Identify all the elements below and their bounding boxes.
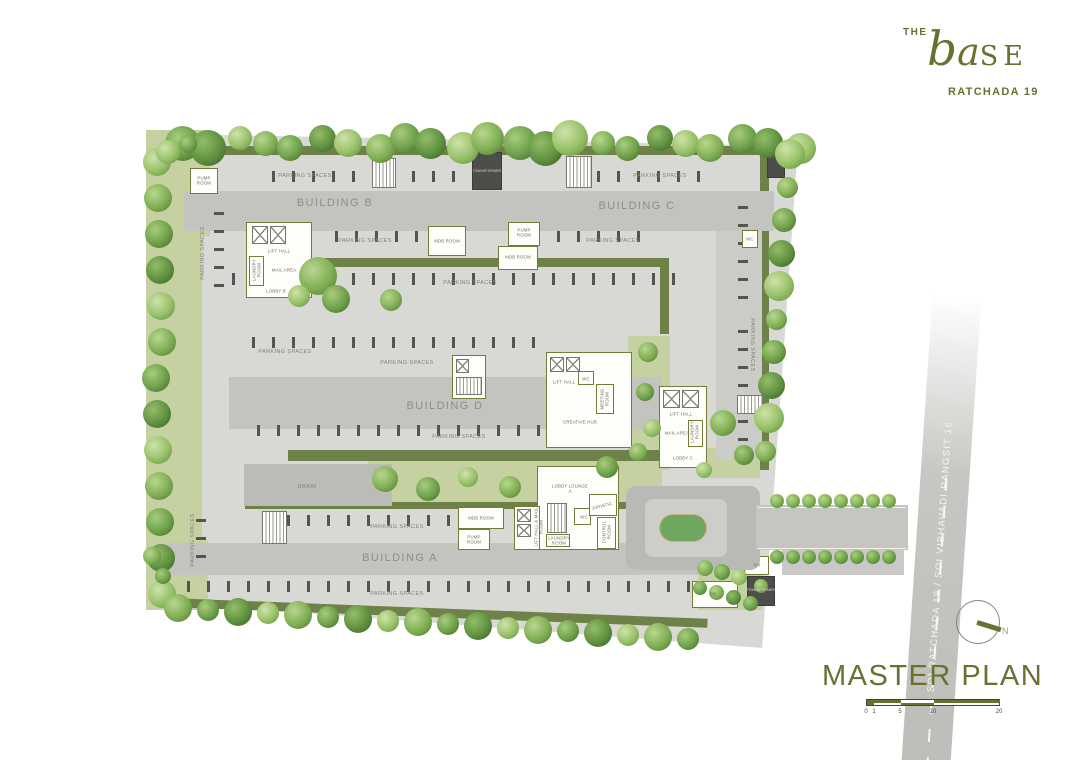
- curb-line: [758, 548, 906, 549]
- scale-tick-0: 0: [864, 709, 867, 715]
- label-parking: PARKING SPACES: [633, 173, 686, 179]
- tree-icon: [818, 550, 832, 564]
- label-control-room: CONTROL ROOM: [602, 519, 613, 545]
- tree-icon: [850, 494, 864, 508]
- label-pump-a: PUMP ROOM: [461, 535, 487, 546]
- label-mail-area-b: MAIL AREA: [271, 267, 297, 272]
- tree-icon: [143, 400, 171, 428]
- tree-icon: [764, 271, 794, 301]
- tree-icon: [834, 494, 848, 508]
- label-laundry-a: LAUNDRY ROOM: [546, 536, 572, 547]
- tree-icon: [416, 477, 440, 501]
- tree-icon: [524, 616, 552, 644]
- tree-icon: [557, 620, 579, 642]
- label-lobby-b: LOBBY B: [263, 288, 289, 293]
- lift-icon: [517, 509, 531, 522]
- scale-tick-1: 1: [872, 709, 875, 715]
- tree-icon: [696, 462, 712, 478]
- scale-tick-5: 5: [898, 709, 901, 715]
- tree-icon: [380, 289, 402, 311]
- tree-icon: [731, 569, 747, 585]
- tree-icon: [288, 285, 310, 307]
- tree-icon: [591, 131, 615, 155]
- tree-icon: [758, 372, 785, 399]
- page-title: MASTER PLAN: [822, 660, 1043, 693]
- tree-icon: [309, 125, 336, 152]
- label-parking: PARKING SPACES: [278, 173, 331, 179]
- lift-icon: [550, 357, 564, 372]
- label-mail-area-c: MAIL AREA: [664, 430, 690, 435]
- brand-subtitle: RATCHADA 19: [948, 86, 1039, 98]
- label-transformer-entry: TRANSFORMER: [747, 588, 775, 592]
- brand-the: THE: [903, 27, 928, 38]
- tree-icon: [770, 550, 784, 564]
- parking-ticks: [240, 425, 540, 436]
- lift-icon: [456, 359, 469, 373]
- tree-icon: [696, 134, 724, 162]
- tree-icon: [471, 122, 504, 155]
- tree-icon: [786, 494, 800, 508]
- label-parking: PARKING SPACES: [370, 524, 423, 530]
- brand-letters-se: SE: [980, 41, 1028, 72]
- tree-icon: [802, 550, 816, 564]
- tree-icon: [334, 129, 362, 157]
- tree-icon: [882, 494, 896, 508]
- tree-icon: [697, 560, 713, 576]
- tree-icon: [777, 177, 798, 198]
- tree-icon: [710, 410, 736, 436]
- tree-icon: [284, 601, 312, 629]
- tree-icon: [144, 436, 172, 464]
- label-drain: DRAIN: [297, 484, 316, 490]
- scale-tick-20: 20: [996, 709, 1003, 715]
- access-road: [756, 505, 908, 550]
- tree-icon: [615, 136, 640, 161]
- tree-icon: [179, 135, 197, 153]
- tree-icon: [672, 130, 699, 157]
- scale-segment: [867, 700, 874, 705]
- parking-ticks: [196, 505, 206, 573]
- label-lobby-lounge-a: LOBBY LOUNGE A: [550, 484, 590, 495]
- tree-icon: [743, 596, 758, 611]
- label-building-d: BUILDING D: [407, 400, 484, 412]
- label-building-b: BUILDING B: [297, 197, 373, 209]
- label-laundry-b: LAUNDRY ROOM: [252, 257, 263, 283]
- lift-icon: [663, 390, 680, 408]
- label-lift-hall-c: LIFT HALL: [668, 411, 694, 416]
- tree-icon: [768, 240, 795, 267]
- tree-icon: [882, 550, 896, 564]
- parking-ticks: [170, 581, 700, 592]
- tree-icon: [144, 184, 172, 212]
- lift-icon: [566, 357, 580, 372]
- tree-icon: [643, 419, 661, 437]
- hedge-inner-top: [312, 258, 668, 267]
- tree-icon: [770, 494, 784, 508]
- tree-icon: [404, 608, 432, 636]
- brand-letter-a: a: [957, 30, 980, 74]
- tree-icon: [818, 494, 832, 508]
- tree-icon: [147, 292, 175, 320]
- label-mdb-room: MDB ROOM: [434, 238, 460, 243]
- label-guard-house: GH: [744, 562, 770, 567]
- north-label: N: [1002, 626, 1009, 636]
- label-creative-hub: CREATIVE HUB: [560, 419, 600, 424]
- label-building-c: BUILDING C: [599, 200, 676, 212]
- tree-icon: [766, 309, 787, 330]
- scale-segment: [901, 703, 934, 706]
- tree-icon: [145, 472, 173, 500]
- label-guard-room: GR: [700, 591, 726, 596]
- label-parking-vertical: PARKING SPACES: [749, 318, 755, 371]
- lift-icon: [682, 390, 699, 408]
- label-lift-hall-mail-room: LIFT HALL & MAIL ROOM: [534, 507, 545, 547]
- label-laundry-c: LAUNDRY ROOM: [690, 419, 701, 445]
- label-transformer-top: TRANSFORMER: [473, 169, 501, 173]
- lift-icon: [270, 226, 286, 244]
- stair-top-c: [566, 156, 592, 188]
- label-lift-hall-b: LIFT HALL: [266, 248, 292, 253]
- tree-icon: [377, 610, 399, 632]
- tree-icon: [146, 508, 174, 536]
- tree-icon: [437, 613, 459, 635]
- tree-icon: [277, 135, 303, 161]
- label-mdb-room-c: MDB ROOM: [505, 254, 531, 259]
- label-parking: PARKING SPACES: [380, 360, 433, 366]
- tree-icon: [228, 126, 252, 150]
- label-wc-c: WC: [737, 236, 763, 241]
- tree-icon: [638, 342, 658, 362]
- label-parking: PARKING SPACES: [338, 238, 391, 244]
- tree-icon: [145, 220, 173, 248]
- tree-icon: [734, 445, 754, 465]
- tree-icon: [143, 547, 161, 565]
- parking-ticks: [738, 330, 748, 456]
- tree-icon: [552, 120, 588, 156]
- stair-d: [456, 377, 482, 395]
- tree-icon: [617, 624, 639, 646]
- scale-tick-10: 10: [930, 709, 937, 715]
- tree-icon: [596, 456, 618, 478]
- label-parking-vertical: PARKING SPACES: [190, 513, 196, 566]
- tree-icon: [148, 328, 176, 356]
- tree-icon: [850, 550, 864, 564]
- tree-icon: [155, 568, 171, 584]
- tree-icon: [786, 550, 800, 564]
- label-meeting-room: MEETING ROOM: [600, 386, 611, 412]
- scale-segment: [874, 700, 901, 703]
- stair-lobby-a: [547, 503, 567, 533]
- tree-icon: [772, 208, 796, 232]
- road-name-label: SOI RATCHADA 19 / SOI VIBHAVADI RANGSIT …: [925, 421, 954, 693]
- tree-icon: [344, 605, 372, 633]
- hedge-inner-right: [660, 258, 669, 334]
- label-parking: PARKING SPACES: [443, 280, 496, 286]
- tree-icon: [372, 466, 398, 492]
- label-mdb-a: MDB ROOM: [468, 515, 494, 520]
- label-parking: PARKING SPACES: [432, 434, 485, 440]
- tree-icon: [762, 340, 786, 364]
- brand-letter-b: b: [927, 22, 957, 77]
- tree-icon: [142, 364, 170, 392]
- tree-icon: [458, 467, 478, 487]
- tree-icon: [866, 494, 880, 508]
- label-parking: PARKING SPACES: [586, 238, 639, 244]
- tree-icon: [866, 550, 880, 564]
- tree-icon: [257, 602, 279, 624]
- tree-icon: [253, 131, 278, 156]
- tree-icon: [317, 606, 339, 628]
- label-wc-hub: WC: [573, 376, 599, 381]
- parking-ticks: [738, 196, 748, 314]
- tree-icon: [754, 403, 784, 433]
- scale-segment: [934, 700, 1000, 703]
- tree-icon: [197, 599, 219, 621]
- tree-icon: [802, 494, 816, 508]
- tree-icon: [677, 628, 699, 650]
- tree-icon: [224, 598, 252, 626]
- tree-icon: [644, 623, 672, 651]
- parking-ticks: [214, 200, 224, 302]
- tree-icon: [464, 612, 492, 640]
- tree-icon: [584, 619, 612, 647]
- tree-icon: [415, 128, 446, 159]
- label-parking: PARKING SPACES: [370, 591, 423, 597]
- tree-icon: [775, 139, 805, 169]
- tree-icon: [755, 441, 776, 462]
- label-lobby-c: LOBBY C: [670, 455, 696, 460]
- scale-bar: [866, 699, 1000, 706]
- label-pump-room-b: PUMP ROOM: [191, 176, 217, 187]
- tree-icon: [156, 140, 180, 164]
- parking-ticks: [235, 337, 535, 348]
- label-parking-vertical: PARKING SPACES: [200, 226, 206, 279]
- stair-top-b: [372, 158, 396, 188]
- master-plan-page: SOI RATCHADA 19 / SOI VIBHAVADI RANGSIT …: [0, 0, 1075, 760]
- tree-icon: [629, 443, 647, 461]
- tree-icon: [499, 476, 521, 498]
- tree-icon: [714, 564, 730, 580]
- tree-icon: [647, 125, 673, 151]
- tree-icon: [146, 256, 174, 284]
- tree-icon: [636, 383, 654, 401]
- lift-icon: [517, 524, 531, 537]
- tree-icon: [322, 285, 350, 313]
- label-parking: PARKING SPACES: [258, 349, 311, 355]
- tree-icon: [726, 590, 741, 605]
- stair-a-west: [262, 511, 287, 544]
- brand-logo: baSE: [927, 22, 1028, 77]
- label-building-a: BUILDING A: [362, 552, 438, 564]
- tree-icon: [164, 594, 192, 622]
- tree-icon: [834, 550, 848, 564]
- label-pump-room-c: PUMP ROOM: [511, 228, 537, 239]
- tree-icon: [497, 617, 519, 639]
- lift-icon: [252, 226, 268, 244]
- dropoff-green-island: [659, 514, 707, 542]
- drain-slab: [244, 464, 392, 506]
- label-wc-a: WC: [571, 514, 597, 519]
